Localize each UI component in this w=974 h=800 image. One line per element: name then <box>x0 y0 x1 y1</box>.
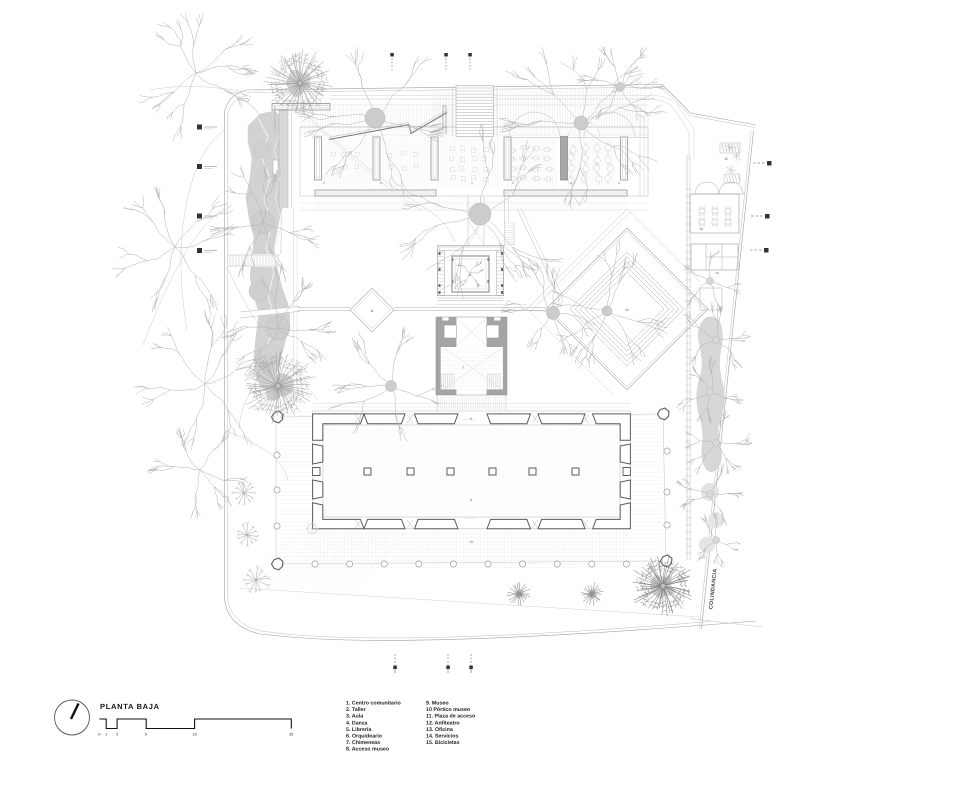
svg-text:15: 15 <box>724 157 728 161</box>
svg-text:10 Pórtico museo: 10 Pórtico museo <box>426 707 471 713</box>
svg-text:PLANTA BAJA: PLANTA BAJA <box>100 702 160 711</box>
svg-text:6: 6 <box>469 273 471 277</box>
svg-text:1. Centro comunitario: 1. Centro comunitario <box>346 701 402 707</box>
svg-text:8. Acceso museo: 8. Acceso museo <box>346 747 390 753</box>
svg-text:3. Aula: 3. Aula <box>346 714 363 720</box>
svg-text:12: 12 <box>625 308 629 312</box>
svg-text:2. Taller: 2. Taller <box>346 707 366 713</box>
svg-text:7. Chimeneas: 7. Chimeneas <box>346 740 380 746</box>
svg-text:6: 6 <box>380 181 382 185</box>
svg-text:3: 3 <box>618 181 620 185</box>
svg-text:11: 11 <box>370 309 374 313</box>
svg-text:5: 5 <box>145 733 147 737</box>
svg-text:14: 14 <box>715 271 719 275</box>
svg-text:1: 1 <box>471 181 473 185</box>
svg-text:2: 2 <box>512 181 514 185</box>
svg-text:13: 13 <box>699 227 703 231</box>
svg-text:20: 20 <box>289 733 293 737</box>
svg-text:6. Orquideario: 6. Orquideario <box>346 734 383 740</box>
svg-text:11. Plaza de acceso: 11. Plaza de acceso <box>426 714 476 720</box>
svg-text:10: 10 <box>469 540 473 544</box>
svg-text:1: 1 <box>105 733 107 737</box>
svg-text:12. Anfiteatro: 12. Anfiteatro <box>426 720 460 726</box>
svg-text:4. Danza: 4. Danza <box>346 720 368 726</box>
svg-text:5: 5 <box>323 181 325 185</box>
svg-text:9. Museo: 9. Museo <box>426 701 449 707</box>
svg-text:7: 7 <box>462 366 464 370</box>
svg-text:9: 9 <box>470 498 472 502</box>
svg-text:10: 10 <box>193 733 197 737</box>
svg-text:14. Servicios: 14. Servicios <box>426 734 458 740</box>
svg-text:0: 0 <box>98 733 100 737</box>
svg-text:15. Bicicletas: 15. Bicicletas <box>426 740 460 746</box>
svg-text:4: 4 <box>570 181 572 185</box>
svg-text:5. Librería: 5. Librería <box>346 727 371 733</box>
svg-text:13. Oficina: 13. Oficina <box>426 727 453 733</box>
svg-text:2: 2 <box>116 733 118 737</box>
